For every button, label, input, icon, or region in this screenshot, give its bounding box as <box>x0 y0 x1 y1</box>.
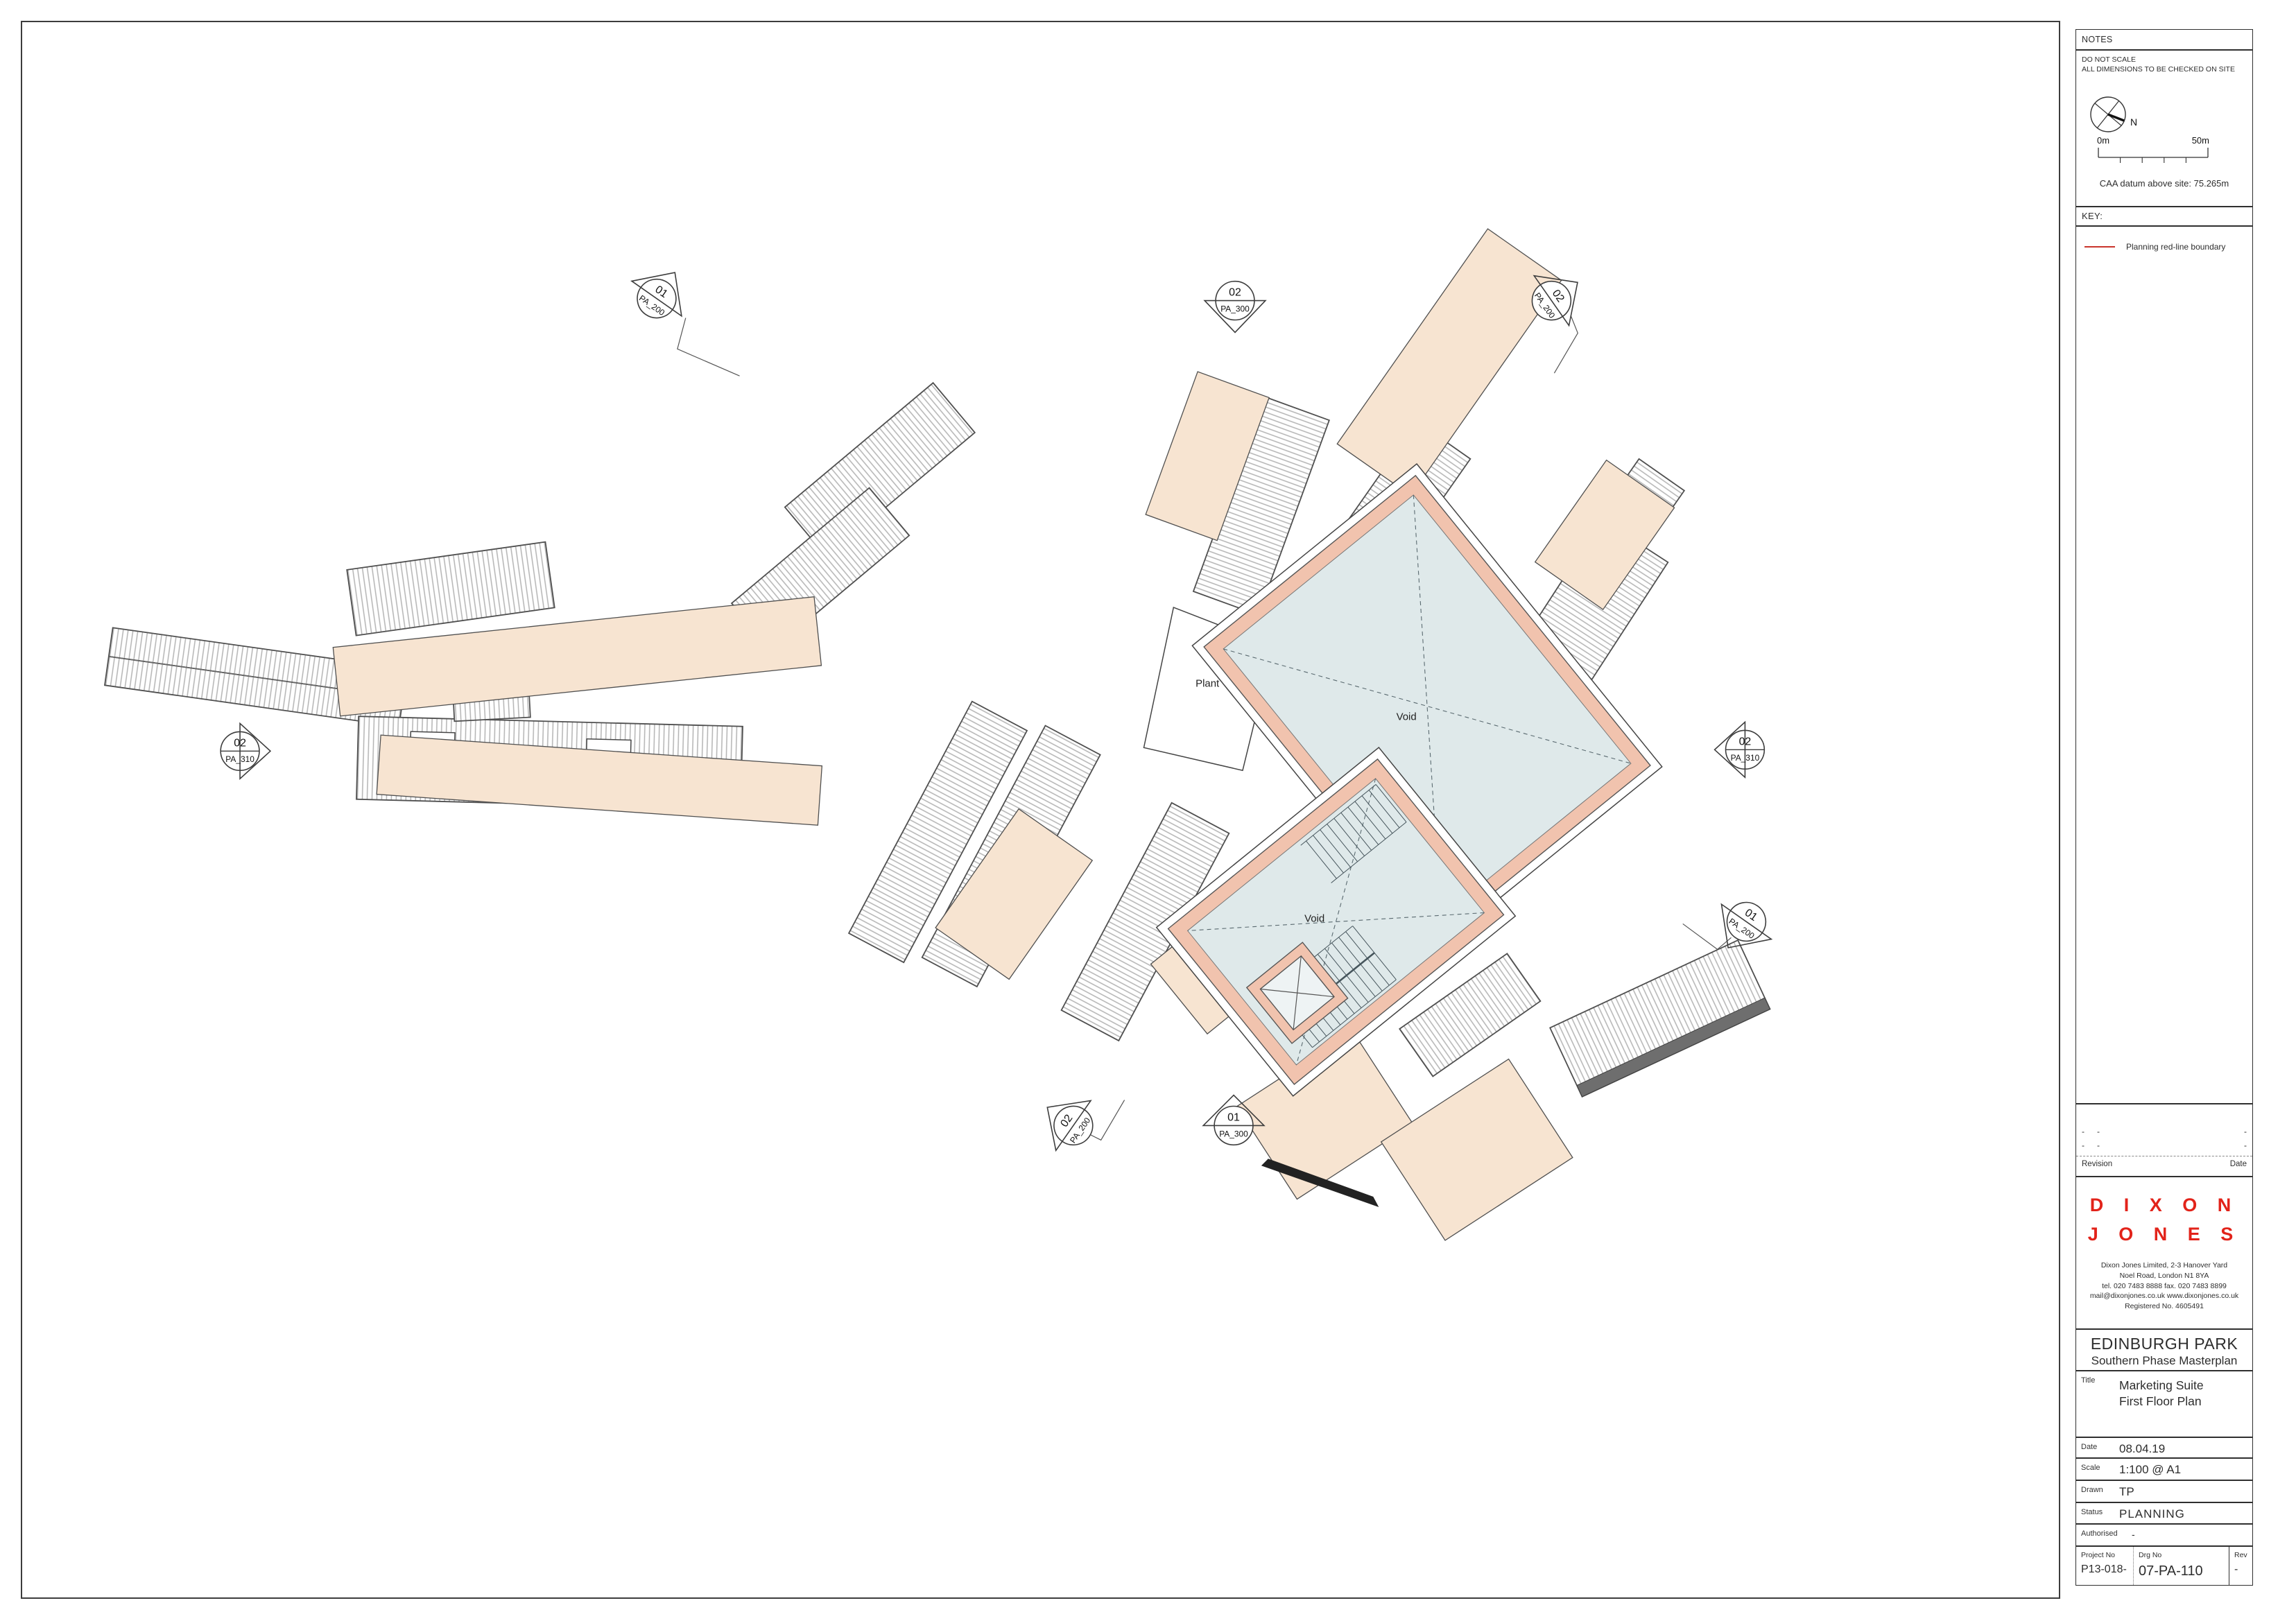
title-line: First Floor Plan <box>2119 1394 2204 1410</box>
project-no-value: P13-018- <box>2081 1563 2127 1576</box>
date-label: Date <box>2230 1160 2247 1168</box>
key-item-label: Planning red-line boundary <box>2126 242 2225 252</box>
date-value: 08.04.19 <box>2119 1442 2165 1456</box>
authorised-value: - <box>2132 1529 2135 1540</box>
redline-swatch <box>2084 246 2115 248</box>
svg-text:02: 02 <box>1739 736 1752 747</box>
notes-header-box: NOTES <box>2075 29 2253 50</box>
drg-no-value: 07-PA-110 <box>2139 1563 2203 1579</box>
status-row: Status PLANNING <box>2075 1502 2253 1524</box>
address-line: Registered No. 4605491 <box>2076 1301 2252 1312</box>
section-marker-top-left: 01 PA_200 <box>621 255 700 332</box>
numbers-row: Project No P13-018- Drg No 07-PA-110 Rev… <box>2075 1546 2253 1586</box>
marker-leader <box>1683 924 1732 949</box>
status-value: PLANNING <box>2119 1507 2185 1521</box>
svg-text:01: 01 <box>1227 1111 1240 1123</box>
svg-text:PA_310: PA_310 <box>1731 753 1760 763</box>
terrace <box>1381 1059 1573 1240</box>
key-header-box: KEY: <box>2075 207 2253 226</box>
svg-text:N: N <box>2130 116 2137 128</box>
date-field-label: Date <box>2081 1443 2097 1451</box>
note-line: ALL DIMENSIONS TO BE CHECKED ON SITE <box>2082 65 2235 75</box>
rev-cell: Rev - <box>2229 1547 2254 1585</box>
title-label: Title <box>2081 1376 2095 1385</box>
project-subtitle: Southern Phase Masterplan <box>2076 1354 2252 1368</box>
svg-text:02: 02 <box>1229 287 1241 299</box>
scale-field-label: Scale <box>2081 1464 2100 1472</box>
section-marker-top-center: 02 PA_300 <box>1205 281 1266 333</box>
drg-no-label: Drg No <box>2139 1551 2161 1559</box>
notes-header: NOTES <box>2076 30 2252 44</box>
svg-text:PA_300: PA_300 <box>1219 1129 1248 1138</box>
drawing-title: Marketing Suite First Floor Plan <box>2119 1378 2204 1410</box>
project-no-label: Project No <box>2081 1551 2115 1559</box>
revision-label: Revision <box>2082 1160 2112 1168</box>
marker-leader <box>1554 316 1578 374</box>
title-row: Title Marketing Suite First Floor Plan <box>2075 1371 2253 1437</box>
key-header: KEY: <box>2076 207 2252 221</box>
firm-address: Dixon Jones Limited, 2-3 Hanover Yard No… <box>2076 1260 2252 1312</box>
title-line: Marketing Suite <box>2119 1378 2204 1394</box>
section-marker-left: 02 PA_310 <box>221 723 270 779</box>
void-label: Void <box>1304 912 1324 924</box>
revision-cell: - <box>2244 1127 2247 1136</box>
roof-building-dark-edge <box>1550 940 1770 1097</box>
section-marker-bottom-left: 02 PA_200 <box>1030 1082 1107 1161</box>
revision-cell: - <box>2097 1141 2100 1150</box>
drawn-field-label: Drawn <box>2081 1486 2103 1494</box>
address-line: Dixon Jones Limited, 2-3 Hanover Yard <box>2076 1260 2252 1271</box>
key-box: Planning red-line boundary <box>2075 226 2253 1104</box>
drawn-row: Drawn TP <box>2075 1480 2253 1502</box>
firm-box: D I X O N J O N E S Dixon Jones Limited,… <box>2075 1177 2253 1329</box>
void-label: Void <box>1397 711 1417 722</box>
project-name: EDINBURGH PARK <box>2076 1335 2252 1353</box>
revision-row: - - - <box>2082 1127 2247 1136</box>
drawing-sheet: { "plan": { "labels": { "plant": "Plant"… <box>0 0 2296 1621</box>
roof-building <box>347 542 554 636</box>
drawing-frame: .roof{fill:url(#ribs);stroke:#4f4f4f;str… <box>21 21 2060 1599</box>
svg-text:PA_300: PA_300 <box>1220 304 1250 314</box>
date-row: Date 08.04.19 <box>2075 1437 2253 1458</box>
rev-value: - <box>2234 1563 2238 1576</box>
svg-text:PA_310: PA_310 <box>225 754 254 764</box>
svg-text:0m: 0m <box>2097 135 2109 146</box>
revision-cell: - <box>2244 1141 2247 1150</box>
dixon-jones-logo: D I X O N J O N E S <box>2076 1191 2252 1249</box>
drg-no-cell: Drg No 07-PA-110 <box>2133 1547 2229 1585</box>
address-line: mail@dixonjones.co.uk www.dixonjones.co.… <box>2076 1291 2252 1301</box>
revision-cell: - <box>2082 1127 2084 1136</box>
revision-cell: - <box>2097 1127 2100 1136</box>
revision-cell: - <box>2082 1141 2084 1150</box>
logo-line: D I X O N <box>2076 1191 2252 1220</box>
logo-line: J O N E S <box>2076 1220 2252 1249</box>
project-box: EDINBURGH PARK Southern Phase Masterplan <box>2075 1329 2253 1371</box>
revision-labels: Revision Date <box>2082 1160 2247 1168</box>
marker-leader <box>1090 1100 1125 1141</box>
note-line: DO NOT SCALE <box>2082 55 2136 65</box>
section-marker-right: 02 PA_310 <box>1715 722 1765 777</box>
rev-label: Rev <box>2234 1551 2247 1559</box>
svg-text:02: 02 <box>234 737 246 749</box>
status-field-label: Status <box>2081 1508 2103 1516</box>
authorised-field-label: Authorised <box>2081 1529 2118 1538</box>
address-line: Noel Road, London N1 8YA <box>2076 1271 2252 1281</box>
svg-text:50m: 50m <box>2192 135 2209 146</box>
address-line: tel. 020 7483 8888 fax. 020 7483 8899 <box>2076 1281 2252 1292</box>
drawn-value: TP <box>2119 1485 2134 1499</box>
revision-separator <box>2076 1156 2252 1156</box>
scale-row: Scale 1:100 @ A1 <box>2075 1458 2253 1480</box>
scale-value: 1:100 @ A1 <box>2119 1463 2181 1477</box>
notes-box: DO NOT SCALE ALL DIMENSIONS TO BE CHECKE… <box>2075 50 2253 207</box>
key-item-redline: Planning red-line boundary <box>2084 242 2225 252</box>
caa-datum-note: CAA datum above site: 75.265m <box>2076 178 2252 189</box>
plant-label: Plant <box>1196 678 1220 690</box>
scale-bar: 0m 50m <box>2076 132 2254 171</box>
project-no-cell: Project No P13-018- <box>2076 1547 2133 1585</box>
revision-row: - - - <box>2082 1141 2247 1150</box>
marker-leader <box>677 318 740 376</box>
authorised-row: Authorised - <box>2075 1524 2253 1546</box>
revision-box: - - - - - - Revision Date <box>2075 1104 2253 1177</box>
floor-plan-svg: .roof{fill:url(#ribs);stroke:#4f4f4f;str… <box>22 22 2062 1597</box>
